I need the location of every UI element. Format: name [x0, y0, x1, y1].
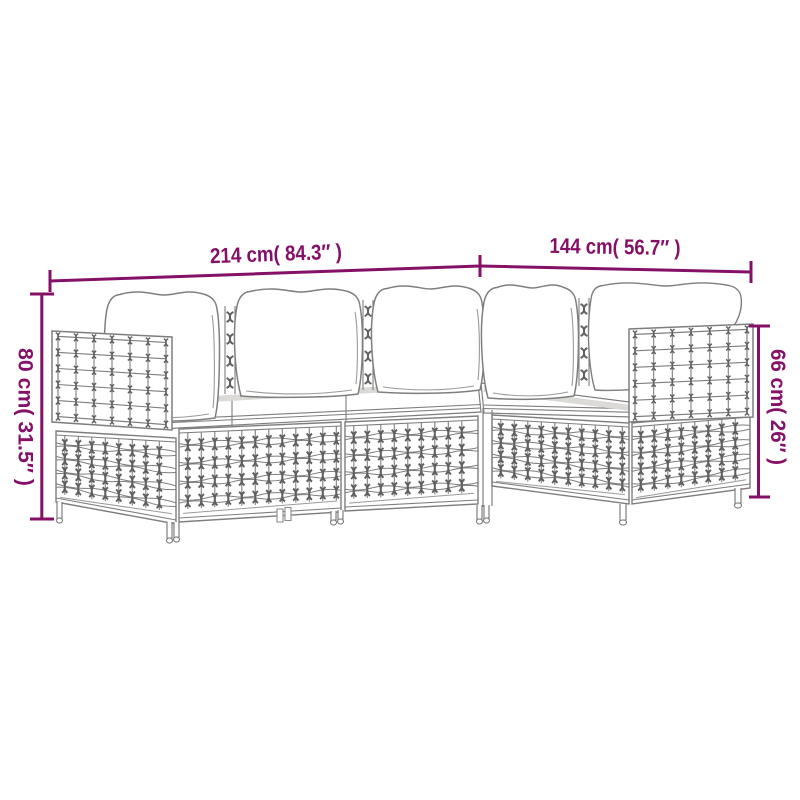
svg-text:66 cm( 26″ ): 66 cm( 26″ ): [766, 349, 790, 465]
svg-text:144 cm( 56.7″ ): 144 cm( 56.7″ ): [549, 234, 680, 260]
svg-text:80 cm( 31.5″ ): 80 cm( 31.5″ ): [14, 348, 38, 486]
svg-text:214 cm( 84.3″ ): 214 cm( 84.3″ ): [210, 240, 343, 269]
